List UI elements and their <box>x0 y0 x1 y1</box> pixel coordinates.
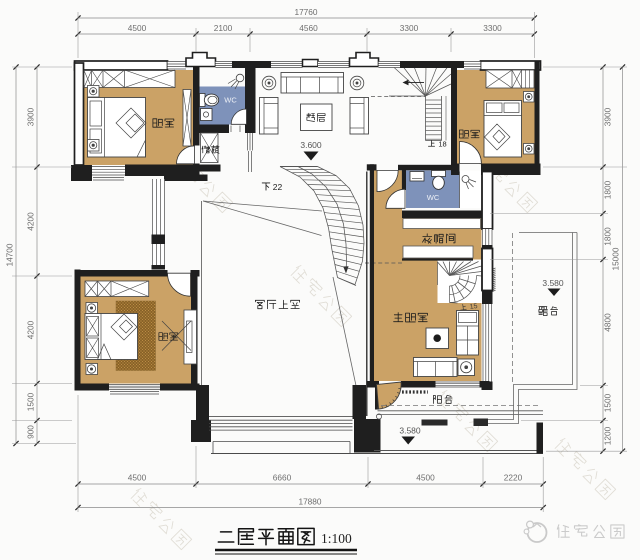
svg-text:1500: 1500 <box>603 393 613 412</box>
svg-text:4800: 4800 <box>603 313 613 332</box>
svg-text:3900: 3900 <box>603 107 613 126</box>
svg-text:4200: 4200 <box>26 320 36 339</box>
svg-text:WC: WC <box>427 193 440 202</box>
svg-text:17880: 17880 <box>298 497 321 507</box>
svg-text:3.580: 3.580 <box>542 278 564 288</box>
svg-text:1800: 1800 <box>603 227 613 246</box>
svg-text:1:100: 1:100 <box>321 531 352 546</box>
svg-text:4560: 4560 <box>299 23 318 33</box>
svg-text:6660: 6660 <box>273 473 292 483</box>
svg-text:17760: 17760 <box>294 7 317 17</box>
svg-text:18: 18 <box>438 140 446 149</box>
svg-text:900: 900 <box>26 425 36 439</box>
svg-text:3900: 3900 <box>26 107 36 126</box>
svg-text:2100: 2100 <box>214 23 233 33</box>
svg-text:3.600: 3.600 <box>300 140 322 150</box>
svg-text:4200: 4200 <box>26 212 36 231</box>
svg-text:1500: 1500 <box>26 392 36 411</box>
svg-text:3300: 3300 <box>400 23 419 33</box>
svg-text:4500: 4500 <box>128 473 147 483</box>
svg-text:1800: 1800 <box>603 180 613 199</box>
svg-text:4500: 4500 <box>128 23 147 33</box>
svg-text:15: 15 <box>469 303 478 311</box>
svg-text:1200: 1200 <box>603 426 613 445</box>
svg-text:3300: 3300 <box>483 23 502 33</box>
svg-text:22: 22 <box>273 182 283 192</box>
svg-text:3.580: 3.580 <box>399 426 421 436</box>
svg-text:4500: 4500 <box>416 473 435 483</box>
svg-text:WC: WC <box>224 96 237 105</box>
svg-text:2220: 2220 <box>504 473 523 483</box>
svg-text:15000: 15000 <box>611 247 621 270</box>
svg-text:14700: 14700 <box>5 243 15 266</box>
